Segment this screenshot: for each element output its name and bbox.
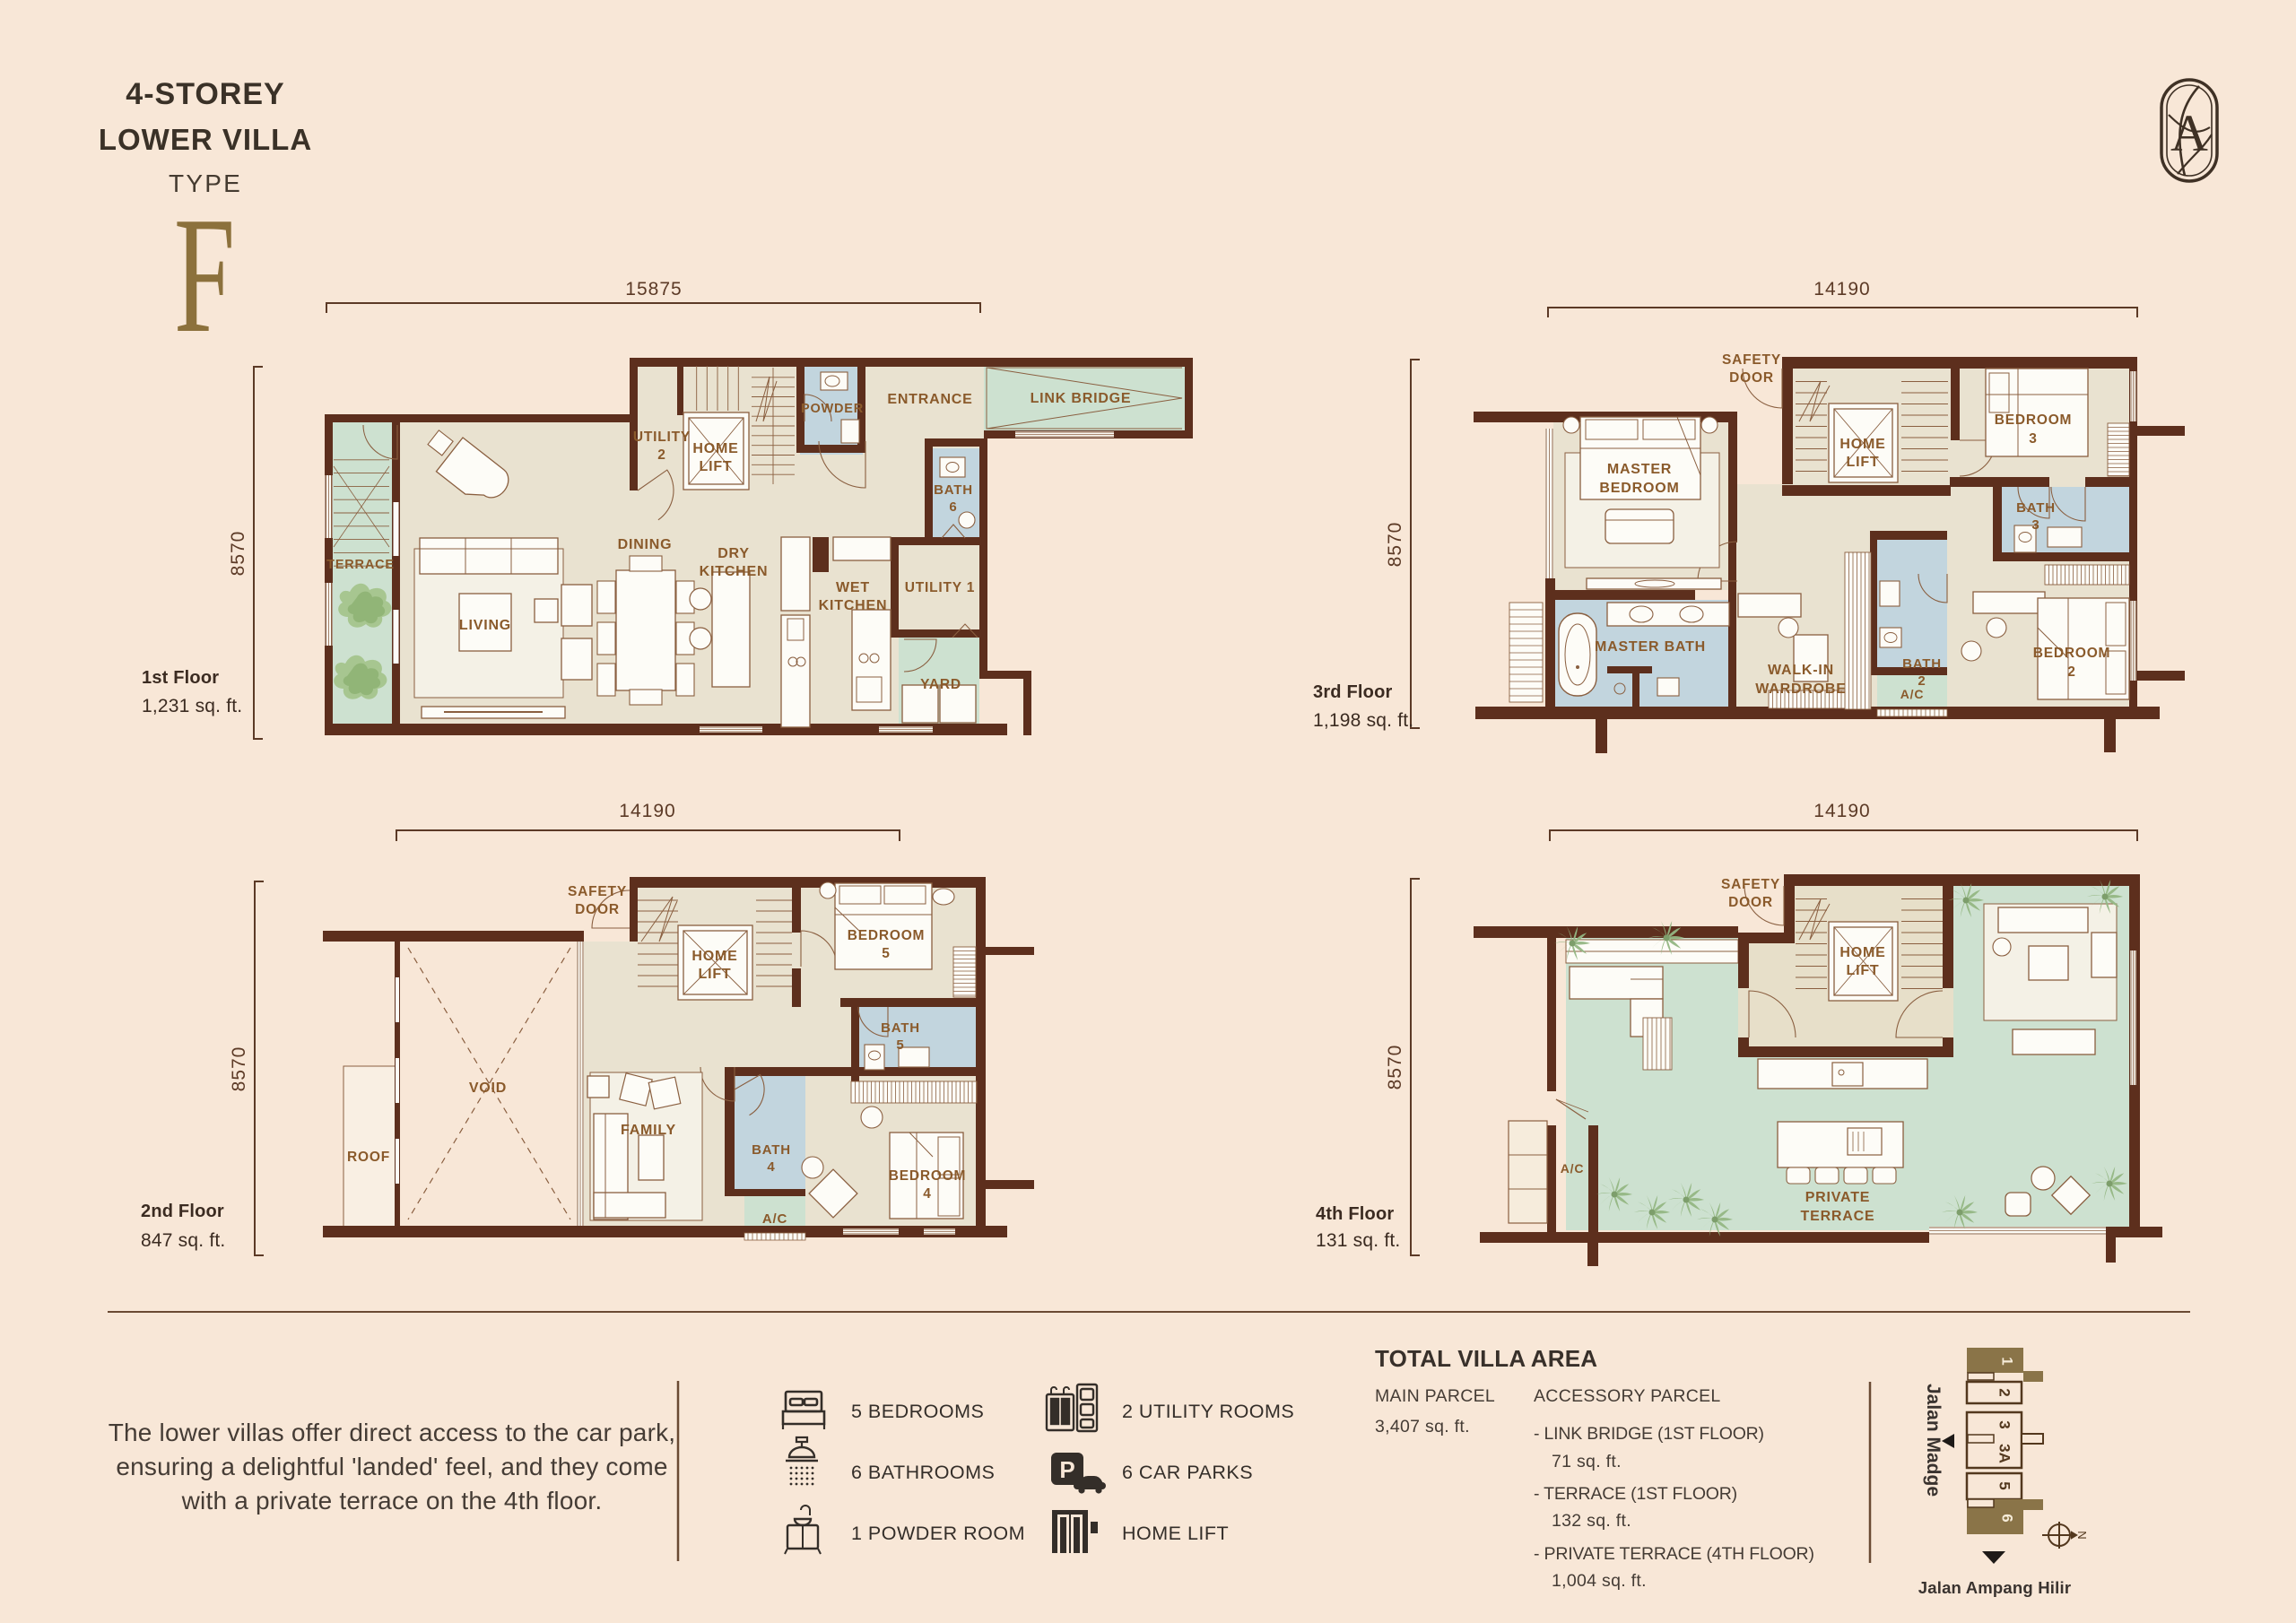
svg-text:SAFETY: SAFETY <box>1721 877 1780 892</box>
svg-text:5 BEDROOMS: 5 BEDROOMS <box>851 1401 984 1422</box>
svg-text:POWDER: POWDER <box>801 402 864 416</box>
svg-text:A: A <box>2170 104 2208 162</box>
svg-text:TERRACE: TERRACE <box>1801 1209 1875 1224</box>
svg-text:ACCESSORY PARCEL: ACCESSORY PARCEL <box>1534 1386 1721 1406</box>
svg-text:BATH: BATH <box>881 1020 920 1036</box>
svg-text:ROOF: ROOF <box>347 1150 390 1165</box>
svg-text:UTILITY: UTILITY <box>633 430 691 445</box>
svg-text:Jalan Madge: Jalan Madge <box>1923 1384 1944 1497</box>
svg-text:LIFT: LIFT <box>1847 963 1880 978</box>
svg-text:YARD: YARD <box>920 677 961 692</box>
svg-text:- LINK BRIDGE (1ST FLOOR): - LINK BRIDGE (1ST FLOOR) <box>1534 1424 1764 1444</box>
svg-text:BEDROOM: BEDROOM <box>889 1168 967 1184</box>
svg-text:ensuring a delightful 'landed': ensuring a delightful 'landed' feel, and… <box>116 1453 667 1480</box>
svg-text:BEDROOM: BEDROOM <box>2033 646 2111 661</box>
svg-text:BEDROOM: BEDROOM <box>1995 412 2073 428</box>
svg-text:VOID: VOID <box>469 1081 507 1096</box>
svg-text:LINK BRIDGE: LINK BRIDGE <box>1031 391 1132 406</box>
svg-text:1,198 sq. ft.: 1,198 sq. ft. <box>1313 710 1413 731</box>
svg-text:KITCHEN: KITCHEN <box>700 564 769 579</box>
svg-text:BATH: BATH <box>934 482 973 498</box>
svg-text:1st Floor: 1st Floor <box>142 668 219 688</box>
svg-text:3: 3 <box>1996 1420 2013 1428</box>
svg-text:- TERRACE (1ST FLOOR): - TERRACE (1ST FLOOR) <box>1534 1484 1737 1504</box>
svg-text:6 CAR PARKS: 6 CAR PARKS <box>1122 1462 1253 1483</box>
svg-text:DOOR: DOOR <box>575 902 620 917</box>
svg-text:5: 5 <box>1996 1481 2013 1489</box>
svg-text:WARDROBE: WARDROBE <box>1755 681 1847 697</box>
svg-text:FAMILY: FAMILY <box>621 1123 676 1138</box>
svg-text:131 sq. ft.: 131 sq. ft. <box>1316 1230 1400 1251</box>
svg-text:LIFT: LIFT <box>1847 455 1880 470</box>
svg-text:8570: 8570 <box>1385 522 1405 568</box>
svg-text:TOTAL VILLA AREA: TOTAL VILLA AREA <box>1375 1345 1597 1372</box>
svg-text:1: 1 <box>1999 1357 2016 1365</box>
svg-text:with a private terrace on the: with a private terrace on the 4th floor. <box>181 1487 603 1515</box>
svg-text:TERRACE: TERRACE <box>326 558 395 572</box>
svg-text:KITCHEN: KITCHEN <box>819 598 888 613</box>
svg-text:DINING: DINING <box>618 537 673 552</box>
svg-text:3: 3 <box>2029 431 2037 447</box>
svg-text:4: 4 <box>767 1159 775 1175</box>
svg-text:DRY: DRY <box>717 546 750 561</box>
svg-text:2: 2 <box>657 447 665 463</box>
svg-text:4-STOREY: 4-STOREY <box>126 77 284 111</box>
svg-text:14190: 14190 <box>1813 801 1870 821</box>
svg-text:3: 3 <box>2031 517 2039 533</box>
svg-text:A/C: A/C <box>1900 687 1925 701</box>
svg-text:15875: 15875 <box>625 279 682 299</box>
svg-text:6: 6 <box>949 499 957 515</box>
svg-text:14190: 14190 <box>619 801 675 821</box>
svg-text:2: 2 <box>2067 664 2075 680</box>
svg-text:1,231 sq. ft.: 1,231 sq. ft. <box>142 696 242 716</box>
svg-text:DOOR: DOOR <box>1728 895 1773 910</box>
svg-text:LIFT: LIFT <box>700 459 733 474</box>
svg-text:14190: 14190 <box>1813 279 1870 299</box>
svg-text:LOWER VILLA: LOWER VILLA <box>99 123 312 156</box>
svg-text:6: 6 <box>1999 1514 2016 1522</box>
svg-text:BATH: BATH <box>2016 500 2056 516</box>
svg-text:MASTER BATH: MASTER BATH <box>1595 639 1706 655</box>
svg-text:1 POWDER ROOM: 1 POWDER ROOM <box>851 1523 1025 1544</box>
svg-text:PRIVATE: PRIVATE <box>1805 1190 1871 1205</box>
svg-text:N: N <box>2075 1531 2089 1539</box>
svg-text:4: 4 <box>923 1186 931 1202</box>
svg-text:F: F <box>174 184 235 368</box>
svg-text:HOME LIFT: HOME LIFT <box>1122 1523 1229 1544</box>
svg-text:WALK-IN: WALK-IN <box>1768 663 1834 678</box>
svg-text:LIVING: LIVING <box>459 618 511 633</box>
svg-text:5: 5 <box>882 946 890 961</box>
svg-text:SAFETY: SAFETY <box>1722 352 1781 368</box>
svg-text:1,004 sq. ft.: 1,004 sq. ft. <box>1552 1571 1647 1591</box>
svg-text:8570: 8570 <box>229 1046 249 1092</box>
svg-text:5: 5 <box>896 1037 904 1053</box>
svg-text:HOME: HOME <box>1839 437 1885 452</box>
svg-text:132 sq. ft.: 132 sq. ft. <box>1552 1511 1631 1531</box>
svg-text:UTILITY 1: UTILITY 1 <box>905 580 975 595</box>
svg-text:3rd Floor: 3rd Floor <box>1313 682 1392 702</box>
svg-text:SAFETY: SAFETY <box>568 884 627 899</box>
svg-text:A/C: A/C <box>762 1211 787 1227</box>
svg-text:The lower villas offer direct: The lower villas offer direct access to … <box>109 1419 676 1446</box>
svg-text:BATH: BATH <box>1902 656 1942 672</box>
svg-text:HOME: HOME <box>692 441 738 456</box>
svg-text:2: 2 <box>1996 1388 2013 1396</box>
svg-text:2nd Floor: 2nd Floor <box>141 1202 224 1221</box>
svg-text:HOME: HOME <box>1839 945 1885 960</box>
svg-text:3,407 sq. ft.: 3,407 sq. ft. <box>1375 1417 1470 1436</box>
svg-text:Jalan Ampang Hilir: Jalan Ampang Hilir <box>1918 1578 2071 1597</box>
svg-text:8570: 8570 <box>1385 1045 1405 1090</box>
svg-text:MASTER: MASTER <box>1607 462 1672 477</box>
svg-text:8570: 8570 <box>228 531 248 577</box>
svg-text:71 sq. ft.: 71 sq. ft. <box>1552 1452 1622 1471</box>
svg-text:BEDROOM: BEDROOM <box>1599 481 1679 496</box>
svg-text:- PRIVATE TERRACE (4TH FLOOR): - PRIVATE TERRACE (4TH FLOOR) <box>1534 1544 1814 1564</box>
svg-text:BATH: BATH <box>752 1142 791 1158</box>
svg-text:3A: 3A <box>1996 1444 2013 1463</box>
svg-text:A/C: A/C <box>1561 1161 1585 1176</box>
svg-text:BEDROOM: BEDROOM <box>848 928 926 943</box>
svg-text:HOME: HOME <box>691 949 737 964</box>
svg-text:WET: WET <box>836 580 870 595</box>
svg-text:847 sq. ft.: 847 sq. ft. <box>141 1230 225 1251</box>
svg-text:MAIN PARCEL: MAIN PARCEL <box>1375 1386 1495 1406</box>
svg-text:6 BATHROOMS: 6 BATHROOMS <box>851 1462 995 1483</box>
svg-text:4th Floor: 4th Floor <box>1316 1204 1394 1224</box>
svg-text:2 UTILITY ROOMS: 2 UTILITY ROOMS <box>1122 1401 1294 1422</box>
svg-text:P: P <box>1059 1456 1074 1483</box>
svg-text:ENTRANCE: ENTRANCE <box>887 392 972 407</box>
svg-text:DOOR: DOOR <box>1729 370 1774 386</box>
svg-text:LIFT: LIFT <box>699 967 732 982</box>
